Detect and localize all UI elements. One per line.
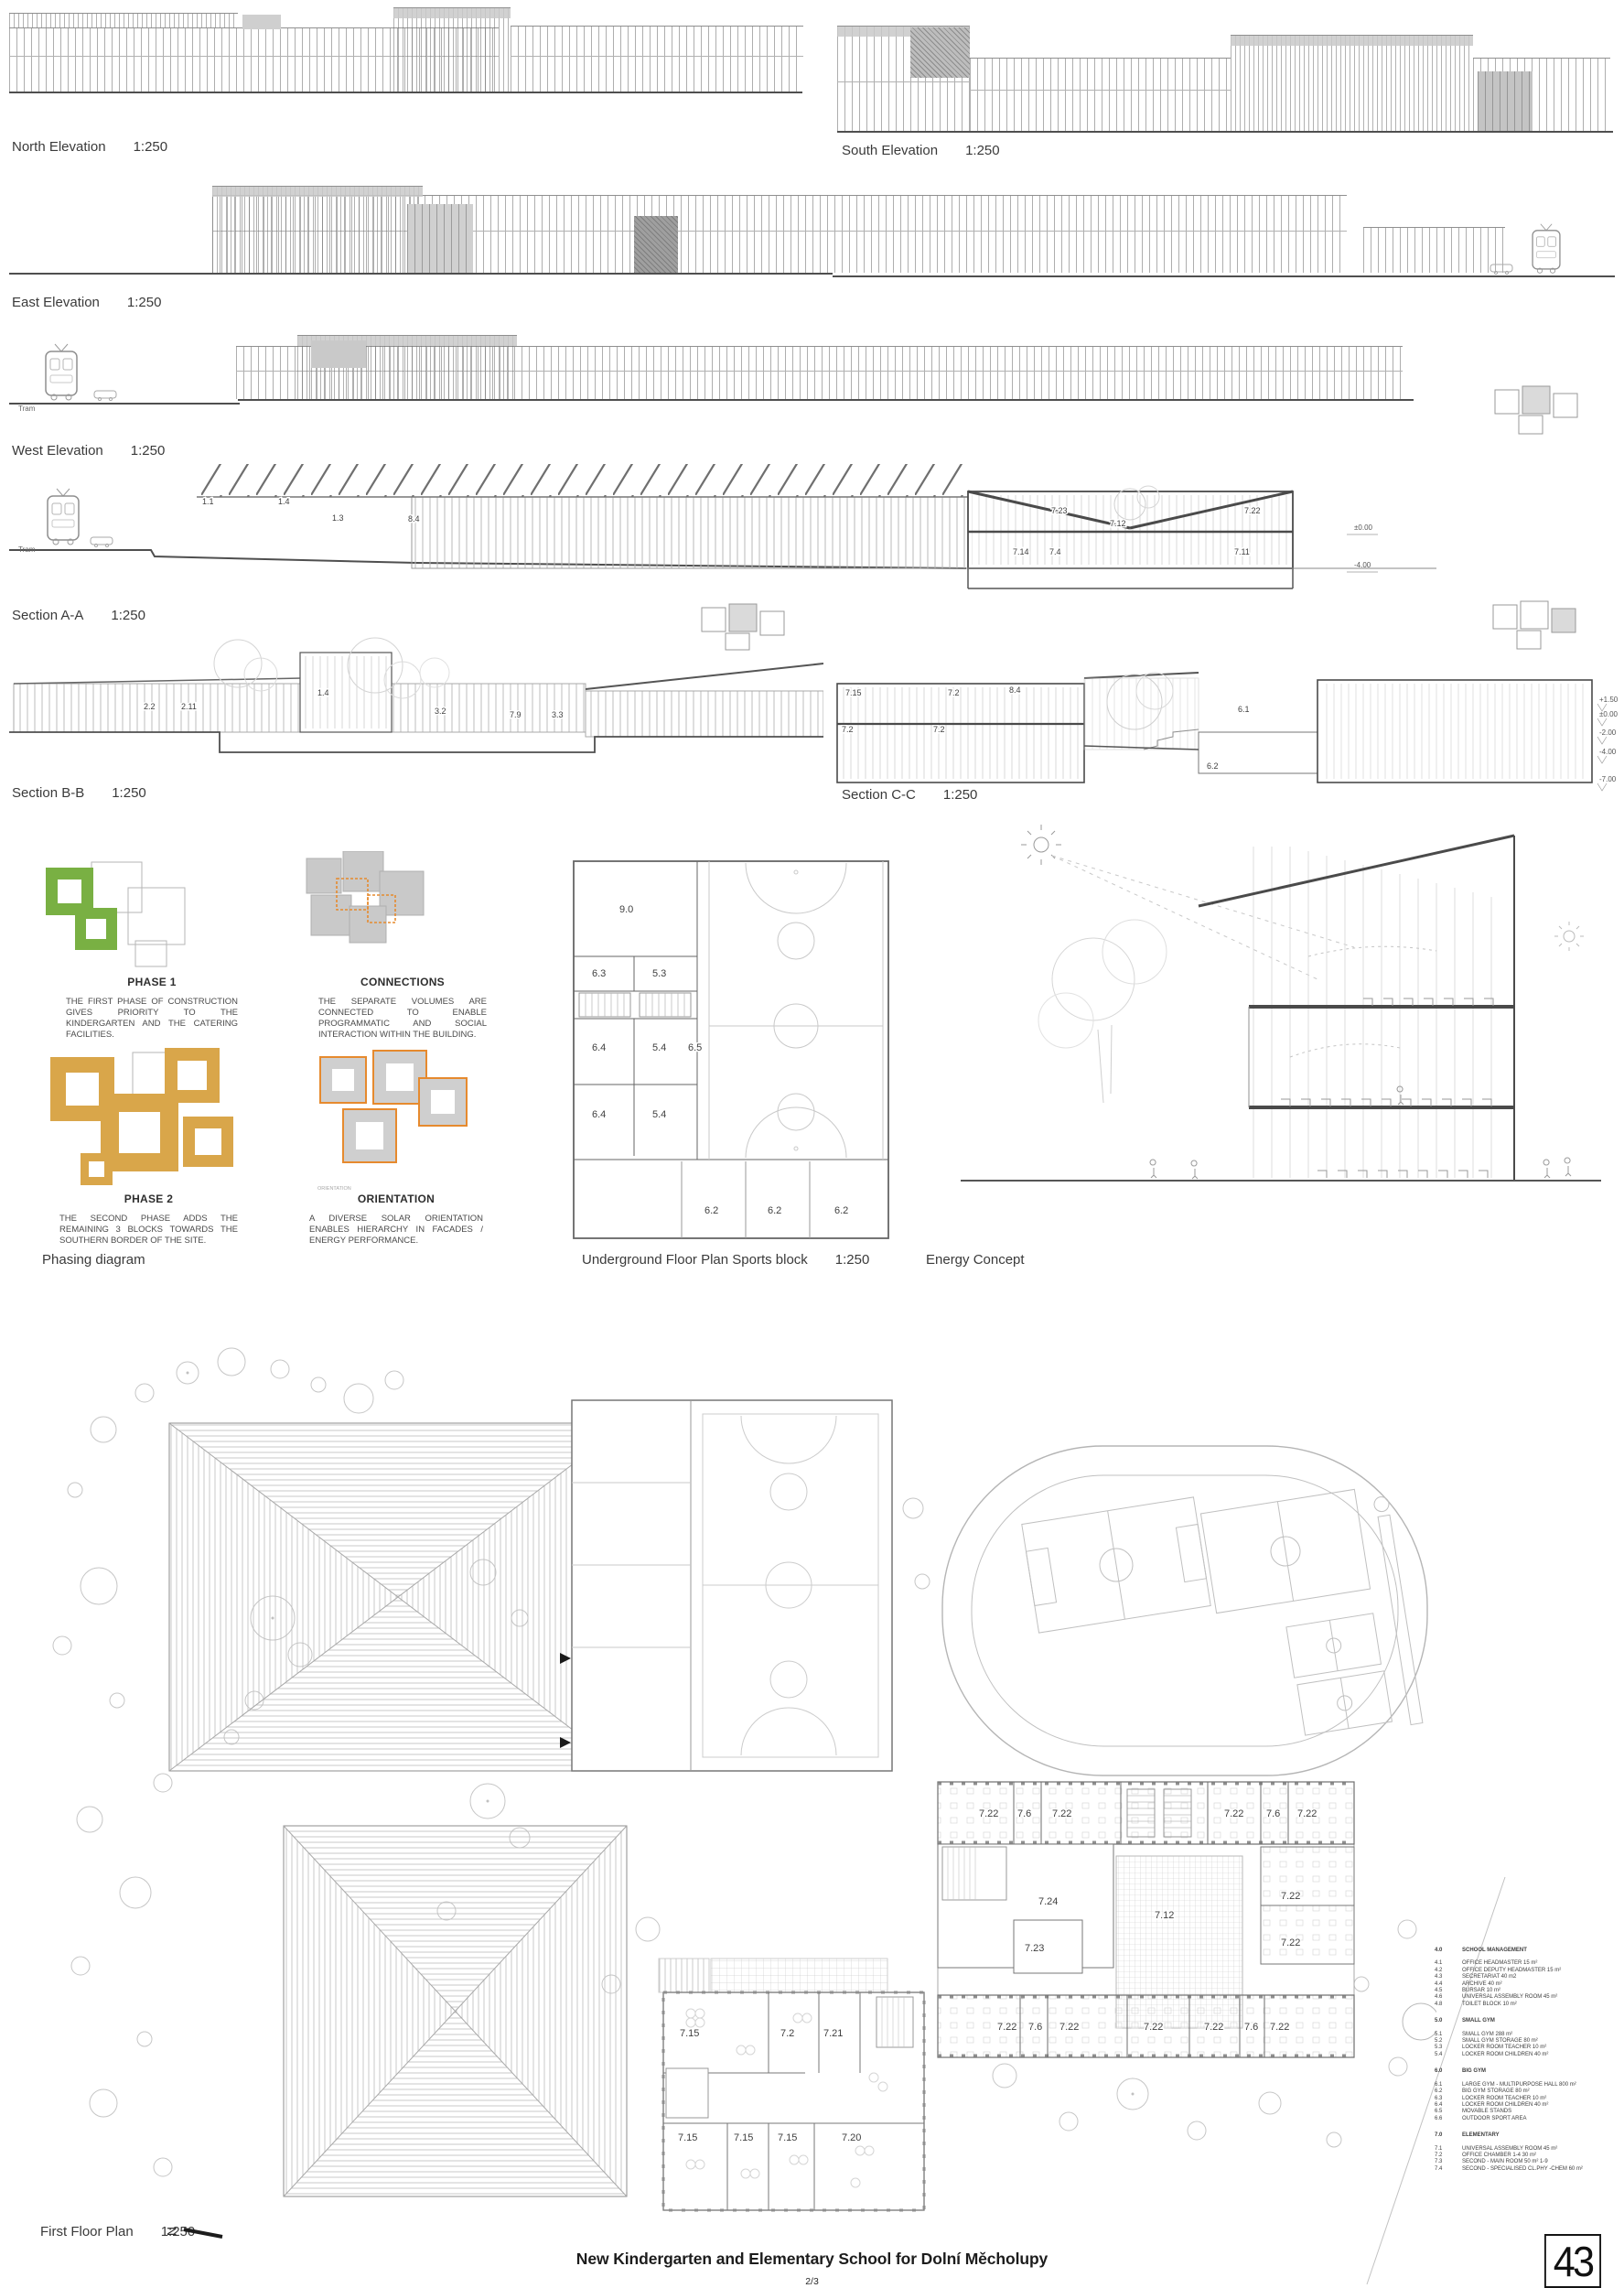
north-arrow-letter: N (165, 2227, 179, 2236)
room-label: 3.3 (552, 710, 564, 719)
section-cc-drawing: 7.15 7.2 8.4 7.2 7.2 6.1 6.2 +1.50 ±0.00… (833, 645, 1624, 801)
energy-concept-label: Energy Concept (926, 1252, 1025, 1268)
level-mark: -2.00 (1599, 728, 1617, 737)
kindergarten-roof-2 (284, 1826, 627, 2196)
legend-item: 5.4LOCKER ROOM CHILDREN 40 m² (1435, 2052, 1616, 2058)
room-label: 1.3 (332, 513, 344, 523)
orientation-cluster: ORIENTATION (317, 1051, 467, 1192)
level-mark: -7.00 (1599, 775, 1617, 783)
legend-item: 7.2OFFICE CHAMBER 1-4 30 m² (1435, 2153, 1616, 2159)
section-cc-label: Section C-C1:250 (842, 787, 977, 803)
kindergarten-roof-1 (169, 1423, 627, 1771)
room-label: 7.15 (778, 2132, 797, 2143)
room-label: 6.2 (704, 1205, 718, 1216)
section-aa-label: Section A-A1:250 (12, 608, 145, 623)
room-label: 7.22 (997, 2022, 1016, 2033)
legend-item: 7.1UNIVERSAL ASSEMBLY ROOM 45 m² (1435, 2146, 1616, 2153)
orientation-body: A DIVERSE SOLAR ORIENTATION ENABLES HIER… (309, 1214, 483, 1247)
soccer-field-2 (1200, 1489, 1370, 1613)
tram-icon (1526, 222, 1566, 275)
ground-line (9, 92, 802, 93)
legend-item: 4.8TOILET BLOCK 10 m² (1435, 2002, 1616, 2008)
facade-band (212, 186, 423, 273)
level-mark: ±0.00 (1354, 523, 1373, 532)
connections-title: CONNECTIONS (318, 976, 487, 988)
west-elevation-label: West Elevation1:250 (12, 443, 165, 459)
room-label: 7.15 (680, 2028, 699, 2039)
room-label: 7.2 (948, 688, 960, 697)
legend-item: 7.3SECOND - MAIN ROOM 50 m² 1-9 (1435, 2159, 1616, 2165)
legend-item: 5.1SMALL GYM 288 m² (1435, 2032, 1616, 2038)
room-label: 7.23 (1025, 1943, 1044, 1954)
section-aa-geometry (9, 464, 1436, 588)
sun-icon-small (1554, 922, 1584, 951)
legend-item: 4.4ARCHIVE 40 m² (1435, 1981, 1616, 1988)
orientation-mini-caption: ORIENTATION (317, 1186, 351, 1192)
orientation-title: ORIENTATION (309, 1193, 483, 1205)
roof-block (242, 15, 281, 29)
ground-line (9, 273, 833, 275)
legend-section: 5.0SMALL GYM 5.1SMALL GYM 288 m² 5.2SMAL… (1435, 2018, 1616, 2058)
kindergarten-plan (659, 1959, 924, 2210)
board-title: New Kindergarten and Elementary School f… (0, 2250, 1624, 2269)
shaded-facade (634, 216, 678, 273)
ground-line (837, 131, 1613, 133)
room-label: 2.2 (144, 702, 156, 711)
car-icon (90, 536, 113, 547)
section-aa-drawing: 1.1 1.4 1.3 8.4 7.23 7.12 7.22 7.14 7.4 … (9, 462, 1615, 654)
legend-item: 4.3SECRETARIAT 40 m2 (1435, 1974, 1616, 1980)
room-label: 6.2 (834, 1205, 848, 1216)
room-label: 7.22 (1297, 1808, 1317, 1819)
sun-icon (1021, 825, 1061, 865)
room-label: 7.2 (780, 2028, 794, 2039)
room-label: 5.3 (652, 968, 666, 979)
sports-hall-plan (560, 1400, 892, 1771)
room-label: 7.6 (1244, 2022, 1258, 2033)
shaded-facade (407, 204, 473, 273)
room-label: 2.11 (181, 702, 197, 711)
shaded-facade (311, 340, 366, 368)
room-label: 7.22 (1224, 1808, 1243, 1819)
legend-item: 7.4SECOND - SPECIALISED CL.PHY -CHEM 60 … (1435, 2166, 1616, 2173)
legend-item: 6.3LOCKER ROOM TEACHER 10 m² (1435, 2096, 1616, 2102)
room-label: 7.9 (510, 710, 522, 719)
room-label: 8.4 (408, 514, 420, 523)
phase2-title: PHASE 2 (59, 1193, 238, 1205)
facade-band (1231, 35, 1473, 131)
key-plan (1491, 384, 1594, 437)
shaded-facade (1478, 71, 1533, 131)
east-elevation-label: East Elevation1:250 (12, 295, 161, 310)
room-label: 1.4 (278, 497, 290, 506)
phase1-title: PHASE 1 (66, 976, 238, 988)
connections-body: THE SEPARATE VOLUMES ARE CONNECTED TO EN… (318, 997, 487, 1041)
phase1-body: THE FIRST PHASE OF CONSTRUCTION GIVES PR… (66, 997, 238, 1041)
legend-section: 4.0SCHOOL MANAGEMENT 4.1OFFICE HEADMASTE… (1435, 1948, 1616, 2008)
room-label: 7.22 (1204, 2022, 1223, 2033)
room-label: 7.23 (1051, 506, 1068, 515)
competition-board: North Elevation1:250 South Elevation1:25… (0, 0, 1624, 2288)
phase2-body: THE SECOND PHASE ADDS THE REMAINING 3 BL… (59, 1214, 238, 1247)
room-label: 6.5 (688, 1042, 702, 1053)
connections-text: CONNECTIONS THE SEPARATE VOLUMES ARE CON… (318, 976, 487, 1041)
room-label: 7.15 (678, 2132, 697, 2143)
room-label: 7.24 (1038, 1896, 1058, 1907)
section-bb-label: Section B-B1:250 (12, 785, 146, 801)
section-bb-geometry (9, 638, 823, 752)
legend-item: 4.1OFFICE HEADMASTER 15 m² (1435, 1960, 1616, 1967)
phase2-text: PHASE 2 THE SECOND PHASE ADDS THE REMAIN… (59, 1193, 238, 1247)
basketball-courts (1286, 1613, 1393, 1736)
room-label: 7.6 (1266, 1808, 1280, 1819)
facade-band (9, 13, 238, 27)
phase1-text: PHASE 1 THE FIRST PHASE OF CONSTRUCTION … (66, 976, 238, 1041)
legend-item: 4.6UNIVERSAL ASSEMBLY ROOM 45 m² (1435, 1994, 1616, 2001)
tram-label: Tram (18, 545, 35, 554)
room-label: 9.0 (619, 904, 633, 915)
room-label: 6.2 (1207, 761, 1219, 771)
north-arrow-line (178, 2223, 226, 2239)
car-icon (1490, 264, 1513, 275)
facade-band (1363, 227, 1505, 273)
room-label: 8.4 (1009, 685, 1021, 695)
west-elevation-drawing (9, 329, 1414, 439)
room-label: 7.2 (933, 725, 945, 734)
north-elevation-drawing (9, 7, 803, 108)
ground-line (833, 275, 1615, 277)
elementary-school-plan (938, 1782, 1354, 2057)
level-mark: ±0.00 (1599, 710, 1619, 718)
people-figures (1150, 1086, 1571, 1179)
first-floor-plan-drawing: 7.22 7.6 7.22 7.22 7.6 7.22 7.24 7.12 7.… (9, 1345, 1436, 2233)
soccer-field-1 (1022, 1497, 1210, 1633)
room-label: 5.4 (652, 1042, 666, 1053)
level-mark: +1.50 (1599, 696, 1619, 704)
room-label: 6.3 (592, 968, 606, 979)
room-label: 5.4 (652, 1109, 666, 1120)
room-label: 7.15 (845, 688, 862, 697)
legend-item: 6.2BIG GYM STORAGE 80 m² (1435, 2088, 1616, 2095)
legend-item: 6.6OUTDOOR SPORT AREA (1435, 2116, 1616, 2122)
room-label: 7.6 (1017, 1808, 1031, 1819)
level-mark: -4.00 (1354, 561, 1371, 569)
room-label: 7.12 (1110, 519, 1126, 528)
south-elevation-label: South Elevation1:250 (842, 143, 1000, 158)
facade-band (393, 7, 511, 92)
sheet-number-badge: 43 (1544, 2234, 1601, 2288)
room-label: 3.2 (435, 707, 446, 716)
energy-concept-sketch (961, 825, 1601, 1181)
legend-item: 5.2SMALL GYM STORAGE 80 m² (1435, 2038, 1616, 2045)
orientation-text: ORIENTATION A DIVERSE SOLAR ORIENTATION … (309, 1193, 483, 1247)
legend-section: 6.0BIG GYM 6.1LARGE GYM - MULTIPURPOSE H… (1435, 2068, 1616, 2122)
shaded-facade (910, 27, 970, 78)
room-label: 7.15 (734, 2132, 753, 2143)
legend-item: 5.3LOCKER ROOM TEACHER 10 m² (1435, 2045, 1616, 2051)
athletics-track (942, 1446, 1427, 1775)
room-label: 6.1 (1238, 705, 1250, 714)
room-label: 7.2 (842, 725, 854, 734)
room-label: 6.4 (592, 1042, 606, 1053)
room-label: 7.22 (1144, 2022, 1163, 2033)
legend-item: 6.1LARGE GYM - MULTIPURPOSE HALL 800 m² (1435, 2082, 1616, 2088)
legend-title: SCHOOL MANAGEMENT (1462, 1948, 1527, 1954)
room-label: 7.12 (1155, 1910, 1174, 1921)
underground-plan-drawing: 9.0 6.3 5.3 6.4 5.4 6.5 6.4 5.4 6.2 6.2 … (572, 854, 892, 1243)
facade-band (970, 58, 1231, 131)
level-mark: -4.00 (1599, 748, 1617, 756)
room-label: 6.4 (592, 1109, 606, 1120)
room-label: 7.14 (1013, 547, 1029, 556)
page-number: 2/3 (0, 2276, 1624, 2287)
room-label: 7.22 (1281, 1937, 1300, 1948)
room-label: 1.4 (317, 688, 329, 697)
connections-cluster (307, 851, 424, 943)
room-label: 7.11 (1234, 547, 1250, 556)
room-label: 7.22 (1281, 1891, 1300, 1902)
south-elevation-drawing (837, 16, 1615, 140)
legend-item: 6.5MOVABLE STANDS (1435, 2109, 1616, 2115)
north-arrow-icon: N (167, 2223, 226, 2239)
tram-icon (38, 342, 84, 403)
tram-icon (40, 487, 86, 547)
energy-concept-drawing (924, 819, 1610, 1245)
legend-item: 4.2OFFICE DEPUTY HEADMASTER 15 m² (1435, 1968, 1616, 1974)
north-elevation-label: North Elevation1:250 (12, 139, 167, 155)
room-label: 7.22 (1244, 506, 1261, 515)
platform-line (9, 403, 240, 405)
room-label: 7.20 (842, 2132, 861, 2143)
underground-plan-label: Underground Floor Plan Sports block1:250 (582, 1252, 869, 1268)
room-legend: 4.0SCHOOL MANAGEMENT 4.1OFFICE HEADMASTE… (1435, 1948, 1616, 2173)
car-icon (93, 390, 117, 401)
phase1-cluster (46, 862, 185, 966)
legend-code: 4.0 (1435, 1948, 1462, 1954)
east-elevation-drawing (9, 181, 1615, 291)
room-label: 7.4 (1049, 547, 1061, 556)
room-label: 7.22 (979, 1808, 998, 1819)
tram-label: Tram (18, 405, 35, 413)
facade-band (511, 26, 803, 92)
ground-line (238, 399, 1414, 401)
underground-plan-geometry (574, 861, 888, 1238)
phase2-cluster (50, 1048, 233, 1185)
room-label: 7.22 (1059, 2022, 1079, 2033)
phasing-diagram-label: Phasing diagram (42, 1252, 145, 1268)
room-label: 7.22 (1052, 1808, 1071, 1819)
room-label: 1.1 (202, 497, 214, 506)
legend-section: 7.0ELEMENTARY 7.1UNIVERSAL ASSEMBLY ROOM… (1435, 2132, 1616, 2173)
legend-item: 6.4LOCKER ROOM CHILDREN 40 m² (1435, 2102, 1616, 2109)
legend-item: 4.5BURSAR 10 m² (1435, 1988, 1616, 1994)
room-label: 7.22 (1270, 2022, 1289, 2033)
room-label: 7.6 (1028, 2022, 1042, 2033)
room-label: 7.21 (823, 2028, 843, 2039)
section-bb-drawing: 2.2 2.11 1.4 3.2 7.9 3.3 (9, 636, 823, 773)
room-label: 6.2 (768, 1205, 781, 1216)
